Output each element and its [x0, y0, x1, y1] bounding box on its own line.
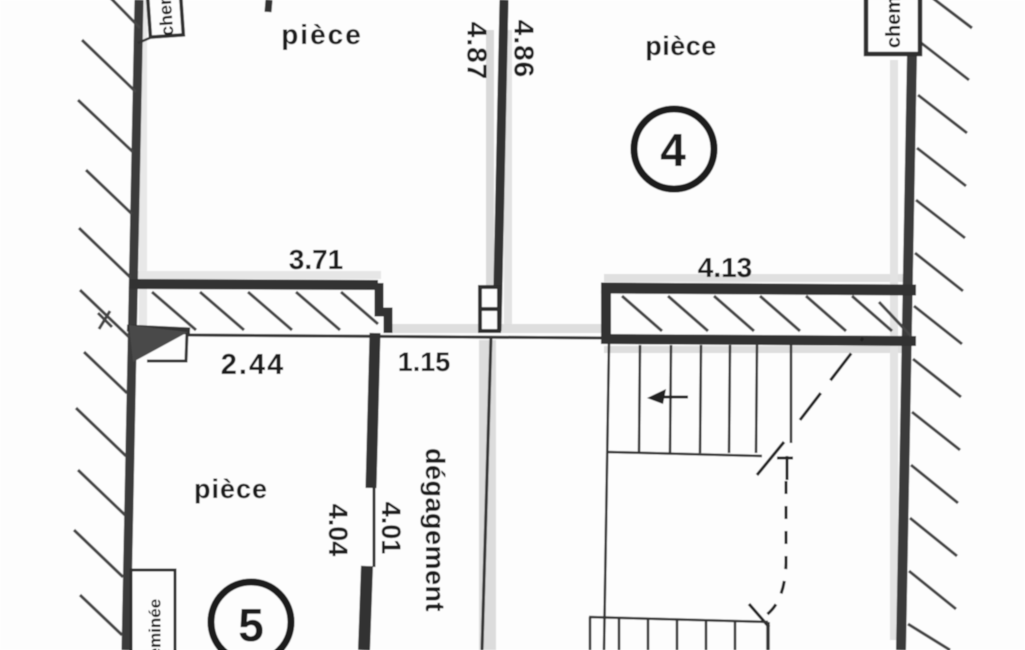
svg-text:chem.: chem.	[154, 0, 178, 37]
svg-text:4.01: 4.01	[376, 502, 406, 555]
svg-text:4.87: 4.87	[462, 22, 493, 81]
svg-text:chem: chem	[883, 0, 905, 48]
svg-text:4.13: 4.13	[698, 252, 753, 283]
svg-text:4: 4	[660, 124, 686, 176]
svg-text:pièce: pièce	[645, 31, 717, 61]
svg-text:5: 5	[238, 599, 264, 650]
svg-text:pièce: pièce	[194, 474, 268, 504]
svg-text:cheminée: cheminée	[146, 599, 165, 650]
svg-text:pièce: pièce	[281, 19, 363, 50]
svg-text:4.86: 4.86	[509, 20, 540, 79]
svg-text:1.15: 1.15	[398, 347, 451, 377]
svg-text:3.71: 3.71	[289, 244, 344, 275]
svg-text:2.44: 2.44	[221, 349, 285, 381]
svg-text:dégagement: dégagement	[420, 448, 450, 612]
svg-text:4.04: 4.04	[323, 504, 353, 557]
